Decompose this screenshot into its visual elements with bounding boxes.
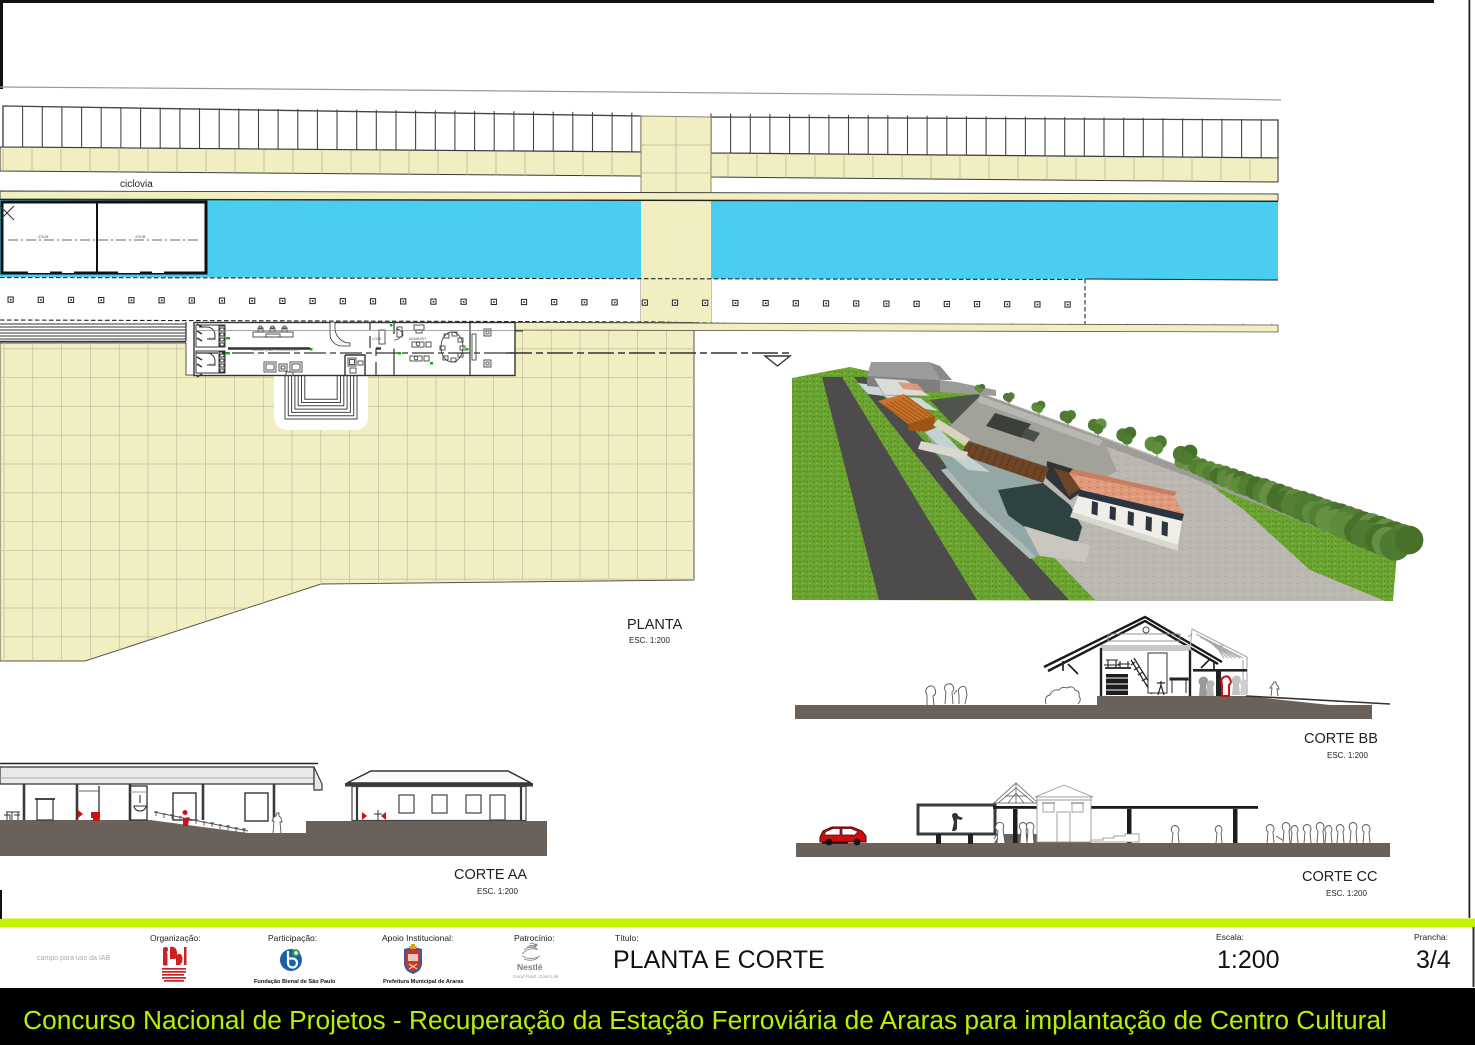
svg-text:ciclovia: ciclovia bbox=[120, 179, 153, 190]
svg-text:ADMINIST.: ADMINIST. bbox=[409, 337, 427, 341]
svg-text:Apoio Institucional:: Apoio Institucional: bbox=[382, 933, 453, 943]
svg-text:CORTE BB: CORTE BB bbox=[1304, 731, 1378, 747]
svg-text:Prefeitura Municipal de Araras: Prefeitura Municipal de Araras bbox=[383, 979, 464, 985]
svg-text:Prancha:: Prancha: bbox=[1414, 932, 1448, 942]
svg-text:478,94: 478,94 bbox=[38, 235, 48, 239]
svg-text:478,98: 478,98 bbox=[135, 235, 145, 239]
svg-text:PLANTA: PLANTA bbox=[627, 617, 683, 633]
svg-text:Título:: Título: bbox=[615, 933, 639, 943]
svg-text:ESC. 1:200: ESC. 1:200 bbox=[1326, 889, 1367, 898]
svg-text:WC: WC bbox=[209, 363, 215, 367]
svg-text:Participação:: Participação: bbox=[268, 933, 317, 943]
svg-text:ESC. 1:200: ESC. 1:200 bbox=[477, 887, 518, 896]
svg-text:3/4: 3/4 bbox=[1416, 946, 1451, 974]
svg-text:ESC. 1:200: ESC. 1:200 bbox=[629, 636, 670, 645]
svg-text:Nestlé: Nestlé bbox=[517, 962, 543, 972]
svg-text:Good Food, Good Life: Good Food, Good Life bbox=[513, 974, 559, 979]
svg-text:PLANTA E CORTE: PLANTA E CORTE bbox=[613, 946, 825, 974]
svg-text:CORTE CC: CORTE CC bbox=[1302, 869, 1377, 885]
svg-text:LOJA: LOJA bbox=[372, 337, 382, 341]
svg-text:Fundação Bienal de São Paulo: Fundação Bienal de São Paulo bbox=[254, 979, 336, 985]
svg-text:CORTE AA: CORTE AA bbox=[454, 867, 527, 883]
svg-text:WC: WC bbox=[209, 337, 215, 341]
svg-text:Concurso Nacional de Projetos: Concurso Nacional de Projetos - Recupera… bbox=[23, 1005, 1387, 1035]
svg-text:1:200: 1:200 bbox=[1217, 946, 1280, 974]
svg-text:Escala:: Escala: bbox=[1216, 932, 1244, 942]
svg-text:ESC. 1:200: ESC. 1:200 bbox=[1327, 751, 1368, 760]
svg-text:RECEPÇÃO / ENCONTRO: RECEPÇÃO / ENCONTRO bbox=[252, 347, 298, 352]
svg-text:Organização:: Organização: bbox=[150, 933, 201, 943]
svg-text:campo para uso da IAB: campo para uso da IAB bbox=[37, 955, 110, 962]
svg-text:Patrocínio:: Patrocínio: bbox=[514, 933, 555, 943]
